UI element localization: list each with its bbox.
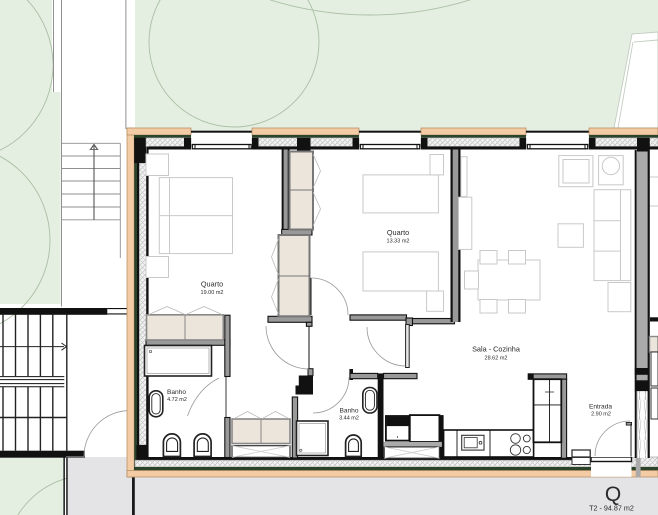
svg-text:Banho: Banho [167, 389, 186, 396]
svg-text:Quarto: Quarto [387, 228, 409, 237]
svg-text:19.00 m2: 19.00 m2 [201, 290, 224, 296]
svg-text:13.33 m2: 13.33 m2 [387, 239, 410, 245]
svg-text:4.72 m2: 4.72 m2 [167, 397, 187, 403]
svg-text:Sala - Cozinha: Sala - Cozinha [472, 345, 521, 354]
svg-text:2.90 m2: 2.90 m2 [591, 412, 611, 418]
svg-text:3.44 m2: 3.44 m2 [339, 416, 359, 422]
svg-text:T2 - 94.87 m2: T2 - 94.87 m2 [589, 504, 634, 513]
svg-text:Banho: Banho [339, 408, 358, 415]
svg-text:Quarto: Quarto [201, 280, 223, 289]
svg-text:Entrada: Entrada [589, 404, 612, 411]
svg-text:28.62 m2: 28.62 m2 [485, 356, 508, 362]
